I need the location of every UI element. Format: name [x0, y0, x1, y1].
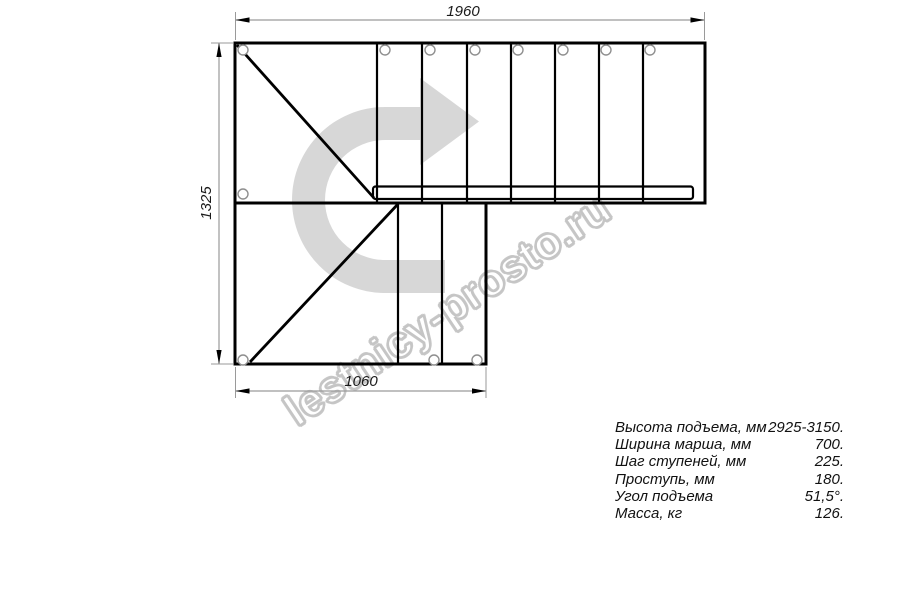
spec-label: Масса, кг: [615, 505, 682, 522]
mounting-hole: [425, 45, 435, 55]
spec-label: Высота подъема, мм: [615, 419, 767, 436]
dimension-arrow-icon: [216, 43, 221, 57]
mounting-hole: [470, 45, 480, 55]
spec-label: Угол подъема: [615, 488, 713, 505]
dimension-value-bottom: 1060: [344, 373, 378, 390]
dimension-top-1960: 1960: [236, 3, 705, 40]
lower-landing-diagonal: [250, 204, 398, 362]
mounting-holes: [238, 45, 655, 365]
dimension-left-1325: 1325: [198, 43, 233, 364]
spec-row: Шаг ступеней, мм 225.: [615, 453, 844, 470]
specs-table: Высота подъема, мм 2925-3150. Ширина мар…: [615, 419, 844, 522]
spec-row: Высота подъема, мм 2925-3150.: [615, 419, 844, 436]
dimension-value-top: 1960: [446, 3, 480, 20]
spec-row: Ширина марша, мм 700.: [615, 436, 844, 453]
dimension-arrow-icon: [472, 388, 486, 393]
spec-row: Угол подъема 51,5°.: [615, 488, 844, 505]
dimension-value-left: 1325: [198, 186, 215, 220]
upper-step-lines: [377, 43, 643, 203]
spec-label: Шаг ступеней, мм: [615, 453, 746, 470]
mounting-hole: [429, 355, 439, 365]
mounting-hole: [238, 45, 248, 55]
upper-landing-diagonal: [237, 45, 374, 198]
mounting-hole: [472, 355, 482, 365]
spec-value: 126.: [815, 505, 844, 522]
stair-drawing-page: lestnicy-prosto.ru: [0, 0, 900, 600]
mounting-hole: [380, 45, 390, 55]
spec-row: Проступь, мм 180.: [615, 471, 844, 488]
dimension-bottom-1060: 1060: [236, 367, 487, 398]
mounting-hole: [558, 45, 568, 55]
spec-value: 225.: [815, 453, 844, 470]
spec-value: 51,5°.: [805, 488, 844, 505]
spec-value: 180.: [815, 471, 844, 488]
spec-value: 700.: [815, 436, 844, 453]
mounting-hole: [238, 189, 248, 199]
spec-label: Проступь, мм: [615, 471, 715, 488]
mounting-hole: [513, 45, 523, 55]
spec-row: Масса, кг 126.: [615, 505, 844, 522]
mounting-hole: [645, 45, 655, 55]
dimension-arrow-icon: [691, 17, 705, 22]
spec-value: 2925-3150.: [768, 419, 844, 436]
dimension-arrow-icon: [216, 350, 221, 364]
lower-step-lines: [398, 203, 442, 364]
dimension-arrow-icon: [236, 388, 250, 393]
spec-label: Ширина марша, мм: [615, 436, 751, 453]
mounting-hole: [238, 355, 248, 365]
dimension-arrow-icon: [236, 17, 250, 22]
mounting-hole: [601, 45, 611, 55]
